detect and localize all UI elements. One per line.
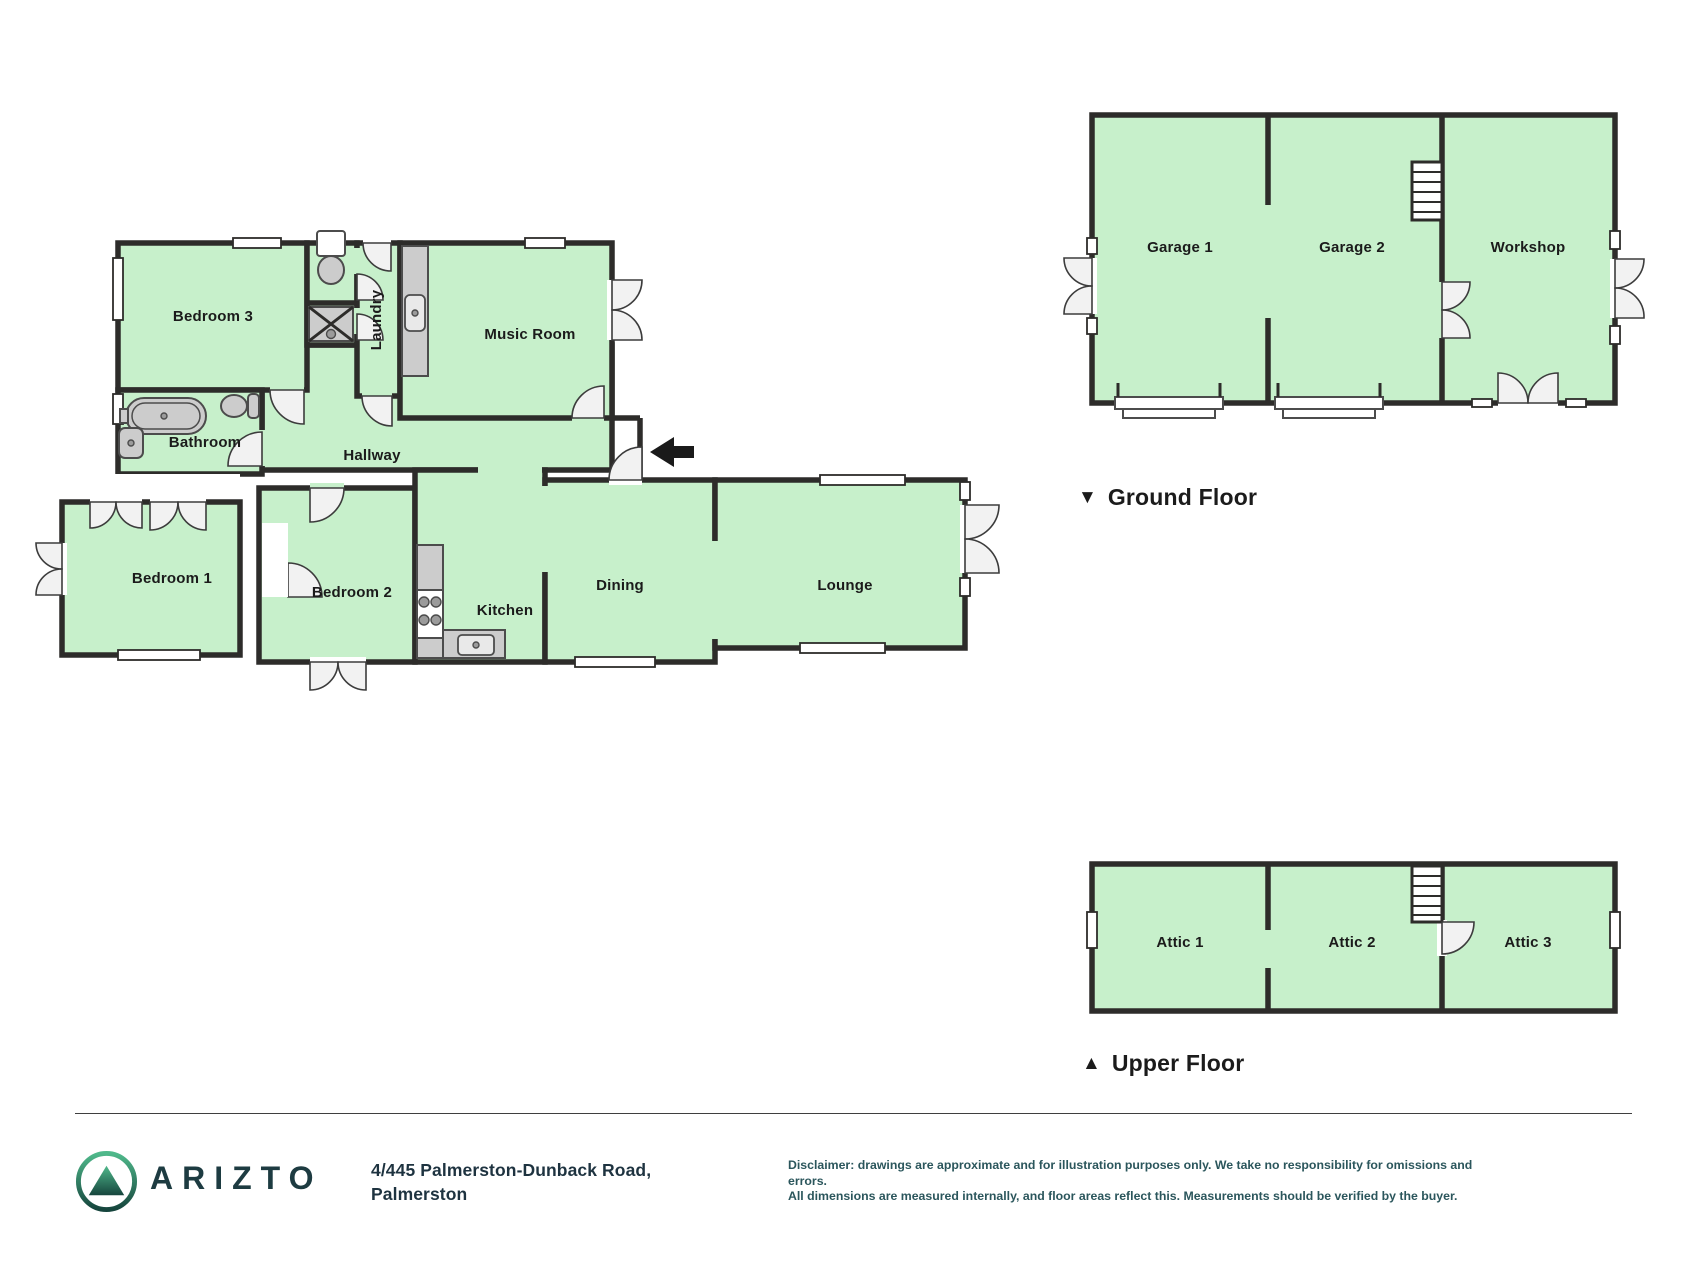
window — [1472, 399, 1492, 407]
disclaimer-text: Disclaimer: drawings are approximate and… — [788, 1158, 1493, 1205]
window — [1610, 231, 1620, 249]
shower-head-icon — [327, 330, 336, 339]
room-label-bedroom-3: Bedroom 3 — [173, 308, 253, 325]
garage-door-icon — [1283, 409, 1375, 418]
door-arc — [338, 662, 366, 690]
room-label-bedroom-1: Bedroom 1 — [132, 570, 212, 587]
window — [233, 238, 281, 248]
opening-kitchen-dining — [539, 486, 551, 572]
room-label-music-room: Music Room — [484, 326, 575, 343]
sink-drain-icon — [473, 642, 479, 648]
stove-burner-icon — [419, 597, 429, 607]
window — [1087, 238, 1097, 254]
room-label-workshop: Workshop — [1491, 239, 1566, 256]
door-arc — [612, 310, 642, 340]
door-arc — [1615, 259, 1644, 288]
toilet-tank-icon — [248, 394, 259, 418]
room-label-lounge: Lounge — [817, 577, 872, 594]
room-lounge — [715, 480, 965, 648]
sink-drain-icon — [128, 440, 134, 446]
doorway-wc — [352, 248, 362, 274]
garage-building — [1092, 115, 1615, 403]
brand-name: ARIZTO — [150, 1160, 323, 1197]
stairs-icon — [1412, 162, 1442, 220]
bathtub-drain-icon — [161, 413, 167, 419]
arizto-logo-icon — [75, 1150, 138, 1213]
bathtub-tap-icon — [120, 409, 128, 423]
stairs-icon — [1412, 866, 1442, 922]
room-label-dining: Dining — [596, 577, 644, 594]
door-arc — [1064, 258, 1092, 286]
window — [820, 475, 905, 485]
garage-door-icon — [1123, 409, 1215, 418]
room-label-kitchen: Kitchen — [477, 602, 533, 619]
sink-drain-icon — [412, 310, 418, 316]
attic-floorplan: Attic 1 Attic 2 Attic 3 — [1087, 864, 1620, 1011]
window — [118, 650, 200, 660]
room-label-bedroom-2: Bedroom 2 — [312, 584, 392, 601]
window — [525, 238, 565, 248]
window — [1566, 399, 1586, 407]
window — [1087, 318, 1097, 334]
door-arc — [965, 539, 999, 573]
address-line-1: 4/445 Palmerston-Dunback Road, — [371, 1158, 651, 1182]
room-label-garage-2: Garage 2 — [1319, 239, 1385, 256]
upper-floor-caption: ▲ Upper Floor — [1082, 1050, 1244, 1077]
garage-building-floorplan: Garage 1 Garage 2 Workshop — [1064, 115, 1644, 418]
door-arc — [36, 569, 62, 595]
opening-dining-lounge — [709, 541, 721, 639]
window — [960, 482, 970, 500]
room-dining — [545, 480, 715, 662]
toilet-icon — [318, 256, 344, 284]
room-label-laundry: Laundry — [368, 289, 385, 350]
footer-divider — [75, 1113, 1632, 1114]
room-label-attic-2: Attic 2 — [1328, 934, 1375, 951]
room-label-attic-1: Attic 1 — [1156, 934, 1203, 951]
room-label-bathroom: Bathroom — [169, 434, 241, 451]
entry-arrow-icon — [650, 437, 694, 467]
door-arc — [36, 543, 62, 569]
window — [800, 643, 885, 653]
stove-burner-icon — [419, 615, 429, 625]
room-label-hallway: Hallway — [343, 447, 401, 464]
room-label-attic-3: Attic 3 — [1504, 934, 1551, 951]
triangle-up-icon: ▲ — [1082, 1054, 1101, 1073]
toilet-icon — [317, 231, 345, 256]
arizto-logo-icon — [75, 1150, 138, 1213]
window — [960, 578, 970, 596]
door-arc — [1064, 286, 1092, 314]
window — [575, 657, 655, 667]
upper-floor-text: Upper Floor — [1112, 1050, 1245, 1077]
toilet-icon — [221, 395, 247, 417]
address-line-2: Palmerston — [371, 1182, 651, 1206]
garage-door-icon — [1275, 397, 1383, 409]
ground-floor-text: Ground Floor — [1108, 484, 1257, 511]
disclaimer-line-1: Disclaimer: drawings are approximate and… — [788, 1158, 1493, 1189]
floorplan-canvas: Bedroom 3 Laundry Music Room Bathroom Ha… — [0, 0, 1707, 1280]
attic-stairs-icon — [1412, 866, 1442, 922]
triangle-down-icon: ▼ — [1078, 488, 1097, 507]
window — [1610, 912, 1620, 948]
room-label-garage-1: Garage 1 — [1147, 239, 1213, 256]
window — [113, 258, 123, 320]
stove-burner-icon — [431, 597, 441, 607]
door-arc — [612, 280, 642, 310]
ground-floor-caption: ▼ Ground Floor — [1078, 484, 1257, 511]
stove-burner-icon — [431, 615, 441, 625]
stove-icon — [417, 590, 443, 638]
bedroom2-closet — [262, 523, 288, 597]
window — [1610, 326, 1620, 344]
door-arc — [310, 662, 338, 690]
property-address: 4/445 Palmerston-Dunback Road, Palmersto… — [371, 1158, 651, 1206]
door-arc — [1615, 288, 1644, 318]
main-house-floorplan: Bedroom 3 Laundry Music Room Bathroom Ha… — [36, 231, 999, 690]
opening-hallway-kitchen — [478, 464, 542, 476]
door-arc — [965, 505, 999, 539]
disclaimer-line-2: All dimensions are measured internally, … — [788, 1189, 1493, 1205]
window — [1087, 912, 1097, 948]
garage-door-icon — [1115, 397, 1223, 409]
